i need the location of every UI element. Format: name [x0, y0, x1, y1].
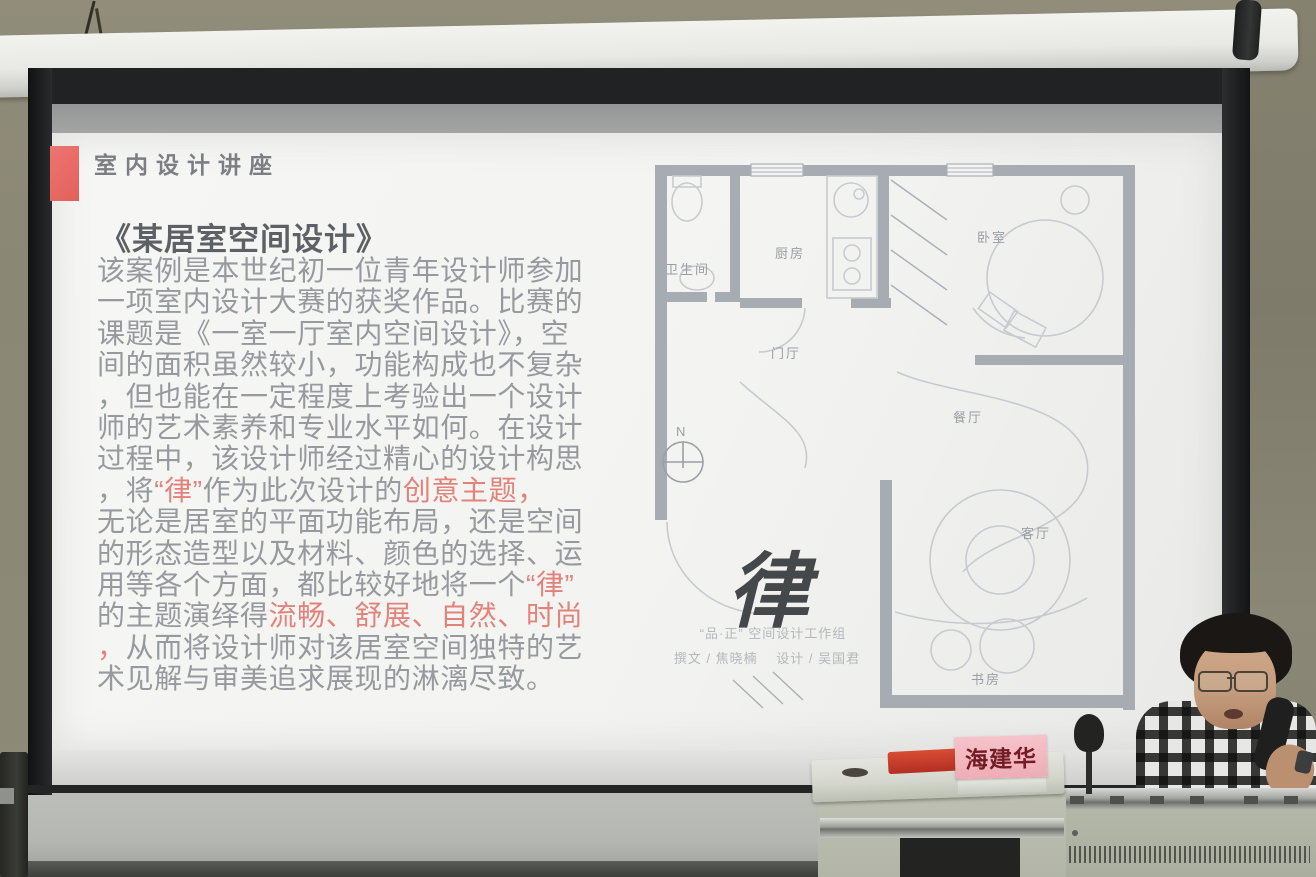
presenter-fringe	[1188, 627, 1282, 653]
body-text: 作为此次设计的	[203, 475, 403, 506]
highlighted-text: “律”	[154, 475, 202, 506]
desk-microphone-stem	[1086, 748, 1092, 794]
lecture-room-photo: 室内设计讲座 《某居室空间设计》 该案例是本世纪初一位青年设计师参加一项室内设计…	[0, 0, 1316, 877]
north-label: N	[676, 424, 687, 439]
unprojected-screen-band	[52, 104, 1222, 133]
paragraph-line: 过程中，该设计师经过精心的设计构思	[97, 443, 657, 474]
screen-left-border	[28, 68, 52, 795]
glasses-bridge	[1227, 677, 1235, 679]
rail-slot-marks	[1244, 796, 1316, 804]
body-text: 术见解与审美追求展现的淋漓尽致。	[97, 663, 555, 694]
body-text: 间的面积虽然较小，功能构成也不复杂	[97, 349, 583, 380]
body-text: 课题是《一室一厅室内空间设计》，空	[97, 318, 569, 349]
room-label-bedroom: 卧室	[977, 230, 1007, 245]
slide-paragraph: 该案例是本世纪初一位青年设计师参加一项室内设计大赛的获奖作品。比赛的课题是《一室…	[97, 255, 657, 695]
paragraph-line: 该案例是本世纪初一位青年设计师参加	[97, 255, 657, 286]
paragraph-line: 用等各个方面，都比较好地将一个“律”	[97, 569, 657, 600]
rail-slot-marks	[1070, 796, 1230, 804]
paragraph-line: 无论是居室的平面功能布局，还是空间	[97, 506, 657, 537]
glasses-left-lens	[1198, 671, 1232, 692]
paragraph-line: 一项室内设计大赛的获奖作品。比赛的	[97, 286, 657, 317]
paragraph-line: 师的艺术素养和专业水平如何。在设计	[97, 412, 657, 443]
lectern-shadow	[900, 838, 1020, 877]
room-label-living: 客厅	[1021, 526, 1051, 541]
body-text: 师的艺术素养和专业水平如何。在设计	[97, 412, 583, 443]
slide-title: 《某居室空间设计》	[100, 214, 388, 259]
floor-plan-drawing: N 卫生间 厨房 卧室 门厅 餐厅 客厅 书房 律 “品·正” 空间设计工作组 …	[655, 160, 1135, 715]
body-text: 一项室内设计大赛的获奖作品。比赛的	[97, 286, 583, 317]
highlighted-text: 流畅、舒展、自然、时尚	[269, 600, 584, 631]
room-label-study: 书房	[971, 672, 1001, 687]
room-label-kitchen: 厨房	[775, 246, 805, 261]
chair-back	[0, 752, 28, 877]
room-label-dining: 餐厅	[953, 410, 983, 425]
highlighted-text: 创意主题，	[403, 475, 546, 506]
body-text: 无论是居室的平面功能布局，还是空间	[97, 506, 583, 537]
paragraph-line: ，但也能在一定程度上考验出一个设计	[97, 381, 657, 412]
north-compass	[663, 442, 703, 482]
studio-line: “品·正” 空间设计工作组	[700, 626, 847, 641]
body-text: 的形态造型以及材料、颜色的选择、运	[97, 538, 583, 569]
cable-grommet	[842, 768, 868, 777]
highlighted-text: ，	[97, 632, 126, 663]
body-text: ，将	[97, 475, 154, 506]
body-text: 该案例是本世纪初一位青年设计师参加	[97, 255, 583, 286]
slide-red-bullet	[50, 146, 79, 201]
desk-front-panel	[1040, 810, 1316, 877]
presenter-mouth	[1224, 709, 1243, 719]
body-text: 从而将设计师对该居室空间独特的艺	[126, 632, 584, 663]
name-card-text: 海建华	[965, 739, 1038, 775]
lectern-drawer-rail	[820, 818, 1064, 838]
paragraph-line: ，从而将设计师对该居室空间独特的艺	[97, 632, 657, 663]
desk-microphone-head	[1074, 714, 1104, 752]
credit-line: 撰文 / 焦晓楠 设计 / 吴国君	[674, 651, 860, 666]
paragraph-line: 课题是《一室一厅室内空间设计》，空	[97, 318, 657, 349]
paragraph-line: 间的面积虽然较小，功能构成也不复杂	[97, 349, 657, 380]
vent-slots	[1064, 846, 1310, 863]
slide-header: 室内设计讲座	[94, 146, 280, 180]
body-text: 的主题演绎得	[97, 600, 269, 631]
body-text: ，但也能在一定程度上考验出一个设计	[97, 381, 583, 412]
room-label-foyer: 门厅	[771, 346, 801, 361]
body-text: 过程中，该设计师经过精心的设计构思	[97, 443, 583, 474]
room-label-bathroom: 卫生间	[665, 262, 710, 277]
panel-screw	[1072, 830, 1078, 836]
paragraph-line: 的主题演绎得流畅、舒展、自然、时尚	[97, 600, 657, 631]
screen-pull-handle	[1232, 0, 1262, 61]
highlighted-text: “律”	[526, 569, 574, 600]
paragraph-line: 的形态造型以及材料、颜色的选择、运	[97, 538, 657, 569]
chair-fitting	[0, 788, 14, 804]
paragraph-line: ，将“律”作为此次设计的创意主题，	[97, 475, 657, 506]
name-card: 海建华	[954, 735, 1047, 779]
glasses-right-lens	[1234, 671, 1268, 692]
body-text: 用等各个方面，都比较好地将一个	[97, 569, 526, 600]
screen-top-border	[28, 68, 1250, 106]
paragraph-line: 术见解与审美追求展现的淋漓尽致。	[97, 663, 657, 694]
